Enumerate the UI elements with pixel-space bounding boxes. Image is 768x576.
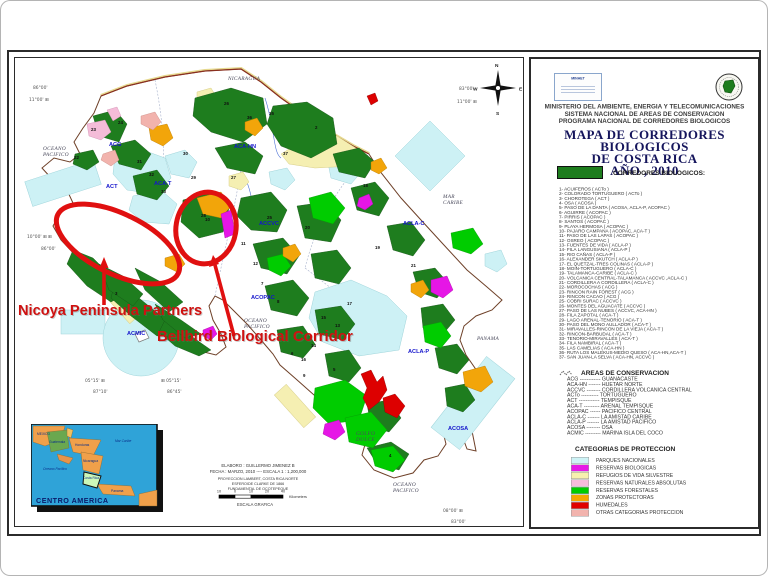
coordinate-label: 11°00' ⊞ (29, 97, 49, 103)
scale-tick: 10 (249, 490, 253, 494)
category-swatch (571, 487, 589, 494)
corridor-number: 35 (269, 111, 274, 116)
corridor-number: 10 (205, 217, 210, 222)
corridor-number: 22 (74, 155, 79, 160)
sea-label: OCEANO (244, 318, 267, 324)
scale-bar (219, 495, 283, 498)
inset-country-label: Oceano Pacifico (43, 467, 67, 471)
coordinate-label: 86°00' (41, 246, 56, 252)
svg-text:S: S (496, 111, 500, 117)
map-panel: N S W E ELABORO : GUILLERMO JIMENEZ BFEC… (14, 57, 524, 527)
category-label: HUMEDALES (596, 503, 628, 509)
inset-country-label: MEXICO (37, 432, 50, 436)
coordinate-label: 83°00' (459, 86, 474, 92)
sea-label: MAR (442, 194, 455, 200)
category-label: RESERVAS BIOLOGICAS (596, 465, 656, 471)
map-title-line: MAPA DE CORREDORES BIOLOGICOS (531, 129, 758, 153)
corridor-number: 17 (347, 301, 352, 306)
legend-panel: MINAET MINISTERIO DEL AMBIENTE, ENERGIA … (529, 57, 760, 529)
areas-list: ACG ------------ GUANACASTEACA-HN ------… (567, 377, 768, 436)
category-row: RESERVAS FORESTALES (571, 487, 768, 494)
coordinate-label: 05°15' ⊞ (85, 378, 105, 384)
category-label: REFUGIOS DE VIDA SILVESTRE (596, 473, 673, 479)
ministry-header-line: MINISTERIO DEL AMBIENTE, ENERGIA Y TELEC… (531, 103, 758, 110)
categories-list: PARQUES NACIONALESRESERVAS BIOLOGICASREF… (571, 457, 768, 517)
sea-label: DULCE (355, 437, 375, 443)
category-swatch (571, 509, 589, 516)
bellbird-annotation: Bellbird Biological Corridor (157, 328, 353, 345)
category-swatch (571, 480, 589, 487)
scale-units: Kilometers (289, 495, 307, 499)
category-swatch (571, 494, 589, 501)
corridor-number: 19 (375, 245, 380, 250)
scale-caption: ESCALA GRAFICA (237, 502, 273, 507)
corridor-number: 33 (161, 189, 166, 194)
inset-title: CENTRO AMERICA (36, 496, 109, 505)
sinac-seal (714, 72, 744, 102)
conservation-area-item: ACMIC --------- MARINA ISLA DEL COCO (567, 431, 768, 436)
corridor-number: 37 (283, 151, 288, 156)
region-label: ACMIC (127, 331, 145, 337)
slide: N S W E ELABORO : GUILLERMO JIMENEZ BFEC… (0, 0, 768, 576)
region-label: ACOSA (448, 426, 468, 432)
corridor-number: 20 (305, 225, 310, 230)
credit-line: PROYECCION LAMBERT, COSTA RICA NORTE (218, 477, 299, 481)
category-row: OTRAS CATEGORIAS PROTECCION (571, 509, 768, 516)
credit-line: FECHA : MARZO, 2010 ---- ESCALA 1 : 1,20… (210, 469, 307, 474)
credit-line: ESFEROIDE CLARKE DE 1866 (232, 482, 284, 486)
inset-country-label: Costa Rica (83, 476, 99, 480)
region-label: ACOPAC (251, 295, 275, 301)
credits-block: ELABORO : GUILLERMO JIMENEZ BFECHA : MAR… (210, 463, 307, 491)
category-row: REFUGIOS DE VIDA SILVESTRE (571, 472, 768, 479)
corridor-number: 21 (411, 263, 416, 268)
svg-text:E: E (519, 87, 523, 93)
corridor-number: 23 (91, 127, 96, 132)
minaet-logo: MINAET (554, 73, 602, 101)
corridor-number: 25 (267, 215, 272, 220)
scale-tick: 10 (217, 490, 221, 494)
sea-label: PACIFICO (42, 152, 69, 158)
corridor-number: 24 (118, 120, 123, 125)
coordinate-label: 10°00' ⊞ ⊞ (27, 234, 52, 240)
ministry-header-line: PROGRAMA NACIONAL DE CORREDORES BIOLOGIC… (531, 118, 758, 125)
sea-label: NICARAGUA (227, 76, 261, 82)
sea-label: PACIFICO (392, 488, 419, 494)
ministry-header: MINISTERIO DEL AMBIENTE, ENERGIA Y TELEC… (531, 103, 758, 125)
coordinate-label: 86°45' (167, 389, 182, 395)
corridor-number: 27 (231, 175, 236, 180)
category-row: RESERVAS NATURALES ABSOLUTAS (571, 479, 768, 486)
compass-rose: N S W E (473, 63, 523, 117)
category-swatch (571, 457, 589, 464)
coordinate-label: 86°00' (33, 85, 48, 91)
sea-label: OCEANO (43, 146, 66, 152)
coordinate-label: ⊞ 05°15' (161, 378, 181, 384)
inset-country-label: Mar Caribe (115, 439, 131, 443)
corridor-number: 29 (191, 175, 196, 180)
coordinate-label: 08°00' ⊞ (443, 508, 463, 514)
category-swatch (571, 472, 589, 479)
corridor-list: 1- ACUIFEROS ( ACTo )2- COLORADO TORTUGU… (559, 187, 768, 360)
corridor-number: 30 (183, 151, 188, 156)
region-label: ACLA-P (408, 349, 429, 355)
svg-text:W: W (473, 87, 478, 93)
sea-label: GOLFO (356, 431, 375, 437)
category-row: ZONAS PROTECTORAS (571, 494, 768, 501)
category-label: RESERVAS NATURALES ABSOLUTAS (596, 480, 686, 486)
corridor-number: 11 (241, 241, 246, 246)
category-label: ZONAS PROTECTORAS (596, 495, 654, 501)
ministry-header-line: SISTEMA NACIONAL DE AREAS DE CONSERVACIO… (531, 110, 758, 117)
inset-map: MEXICOGuatemalaHondurasNicaraguaCosta Ri… (31, 424, 167, 516)
credit-line: ELABORO : GUILLERMO JIMENEZ B (221, 463, 294, 468)
zigzag-icon (559, 369, 575, 377)
category-swatch (571, 502, 589, 509)
coordinate-label: 83°00' (451, 519, 466, 525)
category-label: OTRAS CATEGORIAS PROTECCION (596, 510, 683, 516)
region-label: ACCVC (259, 221, 279, 227)
region-label: ACLA-C (403, 221, 424, 227)
inset-country-label: Nicaragua (83, 459, 98, 463)
corridor-item: 37- SAN JUAN-LA SELVA ( ACA-HN, ACCVC ) (559, 355, 768, 360)
sea-label: PANAMA (476, 336, 499, 342)
region-label: ACG (109, 142, 121, 148)
scale-tick: 0 (234, 490, 236, 494)
corridor-swatch (557, 166, 603, 179)
coordinate-label: 11°00' ⊞ (457, 99, 477, 105)
corridor-number: 36 (247, 115, 252, 120)
corridor-number: 31 (137, 159, 142, 164)
category-row: RESERVAS BIOLOGICAS (571, 464, 768, 471)
inset-country-label: Guatemala (49, 440, 65, 444)
scale-tick: 20 (265, 490, 269, 494)
corridor-number: 26 (224, 101, 229, 106)
scale-tick: 40 (281, 490, 285, 494)
region-label: ACA-T (154, 181, 172, 187)
credit-line: FUNDAMENTAL DE OCOTEPEQUE (228, 487, 289, 491)
category-row: HUMEDALES (571, 502, 768, 509)
corridor-number: 12 (253, 261, 258, 266)
category-swatch (571, 465, 589, 472)
corridor-number: 18 (363, 183, 368, 188)
category-label: PARQUES NACIONALES (596, 458, 655, 464)
corridor-number: 15 (321, 315, 326, 320)
categories-heading: CATEGORIAS DE PROTECCION (575, 445, 675, 453)
category-label: RESERVAS FORESTALES (596, 488, 658, 494)
inset-country-label: Honduras (75, 443, 90, 447)
corridor-number: 32 (149, 172, 154, 177)
nicoya-annotation: Nicoya Peninsula Partners (18, 303, 202, 319)
region-label: ACT (106, 184, 118, 190)
region-label: ACA-HN (234, 144, 256, 150)
coordinate-label: 87°10' (93, 389, 108, 395)
svg-text:N: N (495, 63, 499, 69)
inset-country-label: Panama (111, 489, 123, 493)
category-row: PARQUES NACIONALES (571, 457, 768, 464)
corridor-number: 16 (301, 357, 306, 362)
sea-label: OCEANO (393, 482, 416, 488)
sea-label: CARIBE (443, 200, 464, 206)
minaet-logo-text: MINAET (567, 77, 590, 81)
